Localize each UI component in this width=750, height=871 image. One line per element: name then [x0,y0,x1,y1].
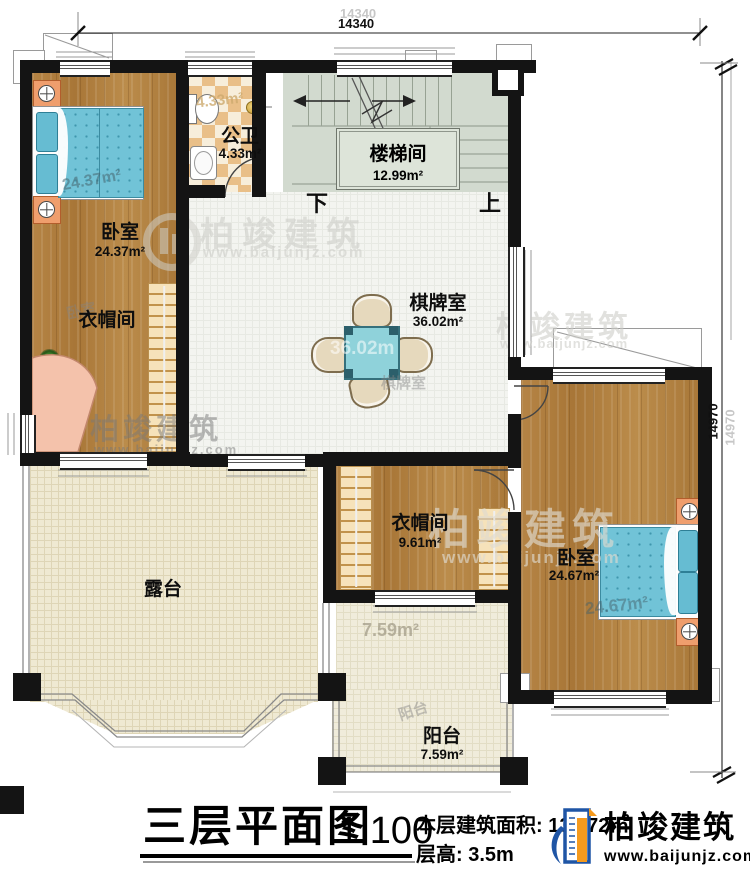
sink [190,146,217,180]
terrace-bay-floor [41,700,318,734]
chair [395,337,433,373]
wall-bedroom-right-west [508,512,521,690]
room-area-balcony: 7.59m² [421,748,464,762]
watermark-url: www.baijunjz.com [203,244,364,261]
room-label-bedroom-right: 卧室 [557,549,595,568]
dimension-top: 14340 [338,16,374,31]
lamp-icon [681,503,698,520]
room-area-bedroom-left: 24.37m² [95,245,145,259]
floor-height-label: 层高: [416,844,463,866]
room-label-cloakroom-right: 衣帽间 [391,514,448,533]
wall-segment [508,690,554,704]
dormer-outline-top-left [43,33,113,62]
wall-segment [20,452,60,466]
wall-left [20,60,32,415]
wall-cloakroom-top [336,452,508,466]
nightstand [33,80,61,108]
stair-down-label: 下 [306,193,328,215]
room-area-bathroom: 4.33m² [219,147,262,161]
stair-up-label: 上 [479,193,501,215]
wall-segment [147,452,190,466]
room-label-terrace: 露台 [144,580,182,599]
wall-bathroom-bottom [176,185,225,198]
wardrobe-right-suite [340,466,372,590]
balcony-upper-floor [336,603,508,690]
brand-url: www.baijunjz.com [604,849,750,865]
title-underline-2 [143,861,415,863]
watermark-logo-icon [143,213,201,271]
stair-treads [296,75,452,126]
ghost-label: 7.59m² [362,620,419,641]
wall-cloakroom-left [323,452,336,603]
room-area-cloakroom-right: 9.61m² [399,536,442,550]
chimney-flue [498,70,518,90]
chair [352,294,392,328]
pillow [36,112,58,152]
wall-segment [190,454,228,467]
dimension-right: 14970 [706,403,721,439]
window [553,367,665,384]
room-label-cloakroom-left: 衣帽间 [78,311,135,330]
window [375,590,475,607]
wall-segment [508,414,521,468]
window [60,452,147,470]
wall-segment [666,690,712,704]
nightstand [33,196,61,224]
pillow [36,154,58,194]
stairwell-label-box: 楼梯间 12.99m² [336,128,460,190]
pillar [500,757,528,785]
plant-icon [40,350,59,369]
ghost-label: 36.02m [330,338,394,360]
bed-right-fold [664,527,678,615]
floor-height-line: 层高: 3.5m [416,845,514,865]
window [20,415,36,453]
room-label-stairwell: 楼梯间 [337,139,459,166]
pillow [678,530,698,572]
floor-area-label: 本层建筑面积: [416,815,543,837]
wall-segment [110,60,188,73]
title-underline [140,854,412,858]
window [188,60,252,77]
pillar [318,757,346,785]
lamp-icon [38,201,55,218]
brand-logo-icon [545,804,599,868]
pillar [0,786,24,814]
window [60,60,110,77]
pillar [318,673,346,701]
room-label-bedroom-left: 卧室 [101,223,139,242]
floor-height-value: 3.5m [468,844,514,866]
brand-name: 柏竣建筑 [604,812,736,843]
window [554,690,666,708]
wall-bedroom-right-top [508,367,553,380]
ghost-label: 14970 [723,409,738,445]
room-area-bedroom-right: 24.67m² [549,569,599,583]
room-label-game-room: 棋牌室 [409,294,466,313]
wall-bedroom-divider [176,73,189,452]
room-area-game-room: 36.02m² [413,315,463,329]
pillow [678,572,698,614]
window [508,247,525,357]
wall-segment [252,60,337,73]
room-label-balcony: 阳台 [423,727,461,746]
pillar [13,673,41,701]
wall-segment [323,590,375,603]
room-label-bathroom: 公卫 [221,127,259,146]
room-area-stairwell: 12.99m² [337,168,459,183]
lamp-icon [38,85,55,102]
window [337,60,452,77]
floor-plan: 柏竣建筑 www.baijunjz.com 柏竣建筑 www.baijunjz.… [0,0,750,871]
window [228,454,305,471]
ghost-label: 棋牌室 [381,372,426,393]
lamp-icon [681,623,698,640]
